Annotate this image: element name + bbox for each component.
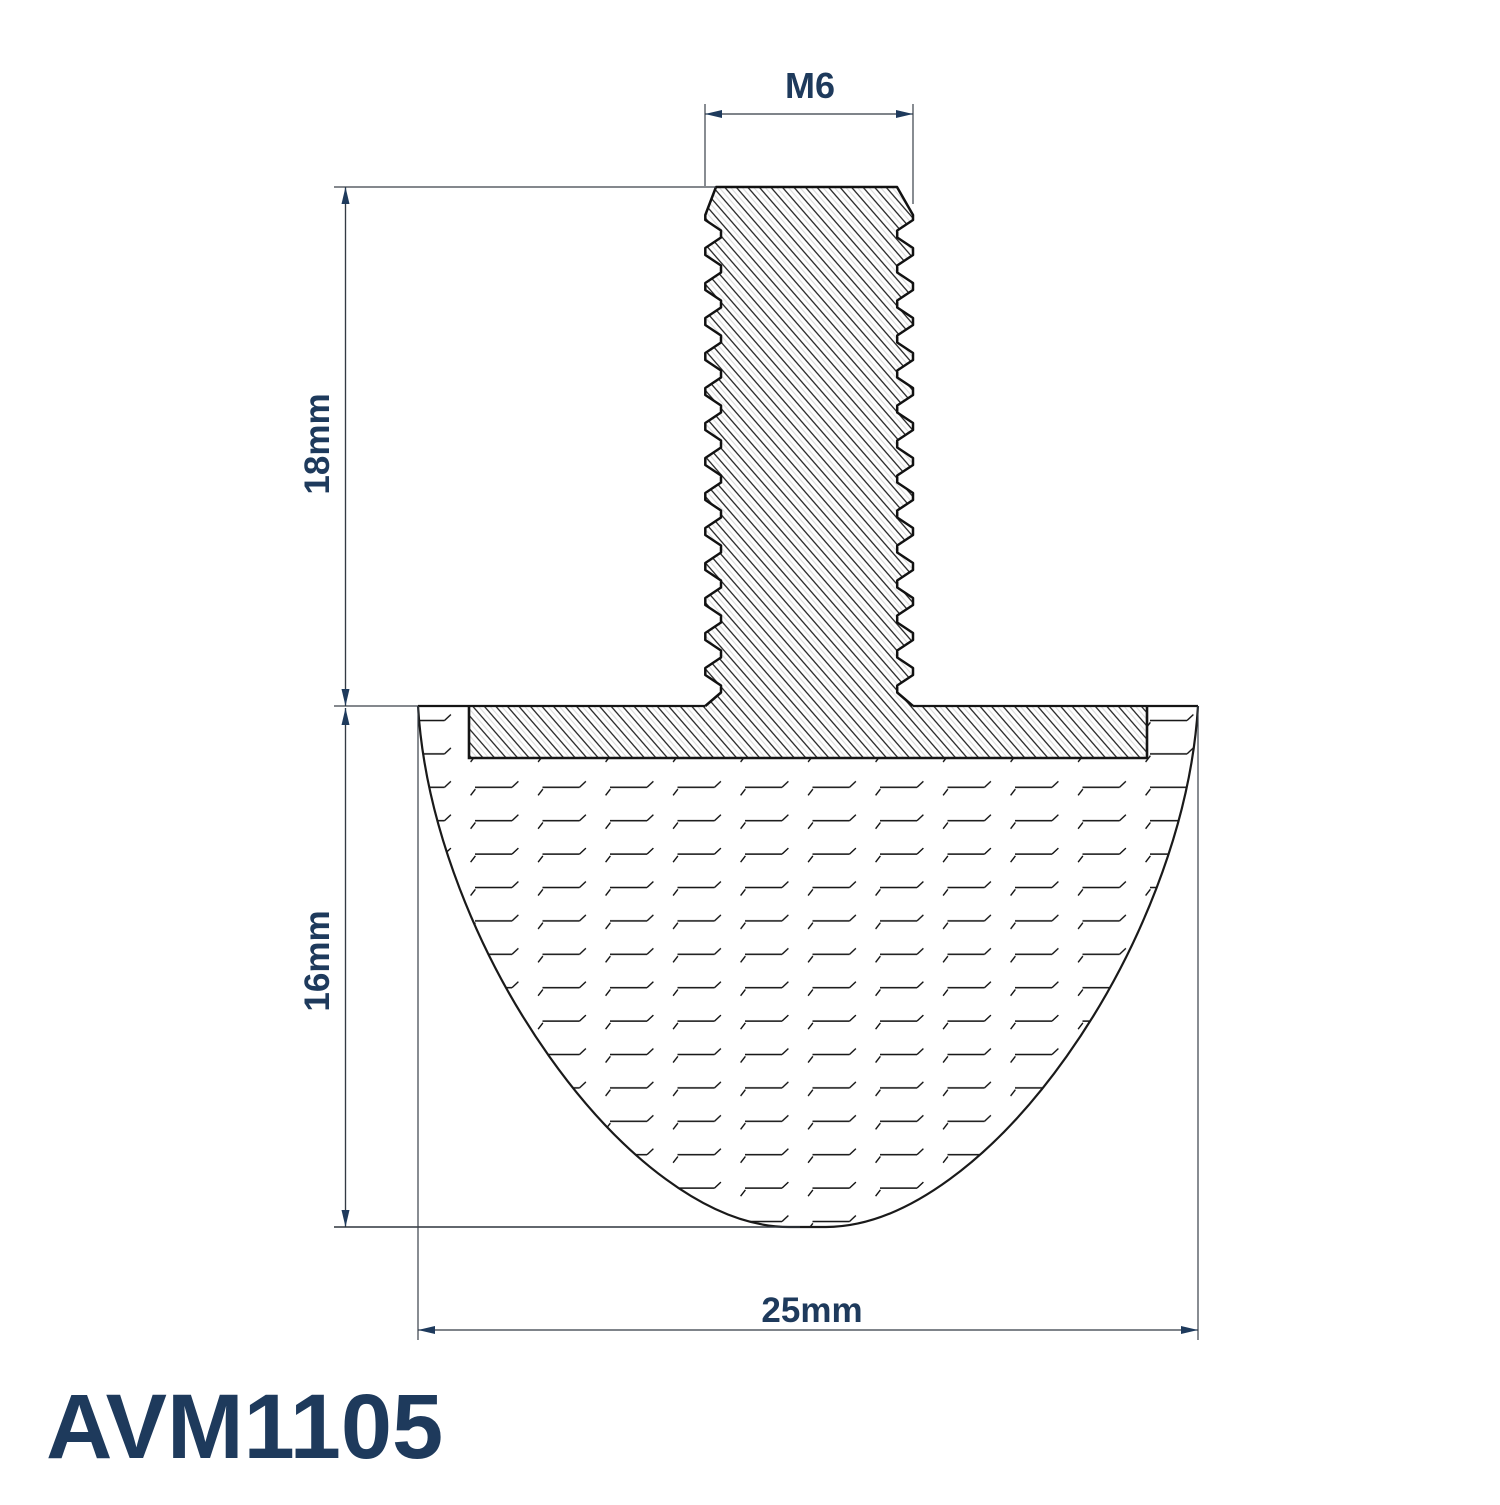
svg-text:M6: M6	[785, 65, 835, 106]
svg-text:18mm: 18mm	[298, 393, 337, 494]
svg-text:AVM1105: AVM1105	[46, 1376, 443, 1478]
svg-text:16mm: 16mm	[298, 910, 337, 1011]
svg-text:25mm: 25mm	[761, 1291, 862, 1330]
